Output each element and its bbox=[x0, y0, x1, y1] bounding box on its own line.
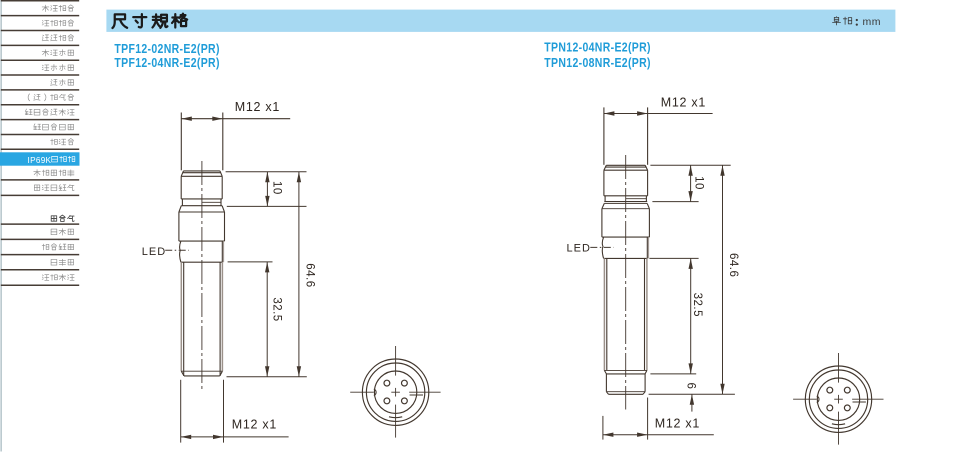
svg-text:64.6: 64.6 bbox=[727, 253, 739, 277]
svg-text:6: 6 bbox=[685, 383, 697, 390]
svg-text:32.5: 32.5 bbox=[271, 297, 283, 321]
svg-text:TPF12-02NR-E2(PR): TPF12-02NR-E2(PR) bbox=[114, 43, 219, 56]
svg-text:32.5: 32.5 bbox=[691, 293, 703, 317]
svg-text:LED: LED bbox=[567, 242, 591, 254]
svg-text:LED: LED bbox=[142, 246, 166, 258]
svg-text:M12 x1: M12 x1 bbox=[661, 96, 706, 110]
svg-text:TPN12-08NR-E2(PR): TPN12-08NR-E2(PR) bbox=[544, 57, 651, 70]
svg-text:10: 10 bbox=[271, 181, 283, 195]
svg-text:TPF12-04NR-E2(PR): TPF12-04NR-E2(PR) bbox=[114, 57, 219, 70]
svg-text:IP69K: IP69K bbox=[28, 156, 52, 165]
svg-text:10: 10 bbox=[693, 176, 705, 190]
svg-text:TPN12-04NR-E2(PR): TPN12-04NR-E2(PR) bbox=[544, 42, 651, 55]
svg-text:M12 x1: M12 x1 bbox=[235, 100, 280, 114]
svg-text:mm: mm bbox=[863, 16, 882, 28]
svg-text:M12 x1: M12 x1 bbox=[232, 417, 277, 431]
svg-text:M12 x1: M12 x1 bbox=[655, 416, 700, 430]
svg-text:64.6: 64.6 bbox=[304, 263, 316, 287]
